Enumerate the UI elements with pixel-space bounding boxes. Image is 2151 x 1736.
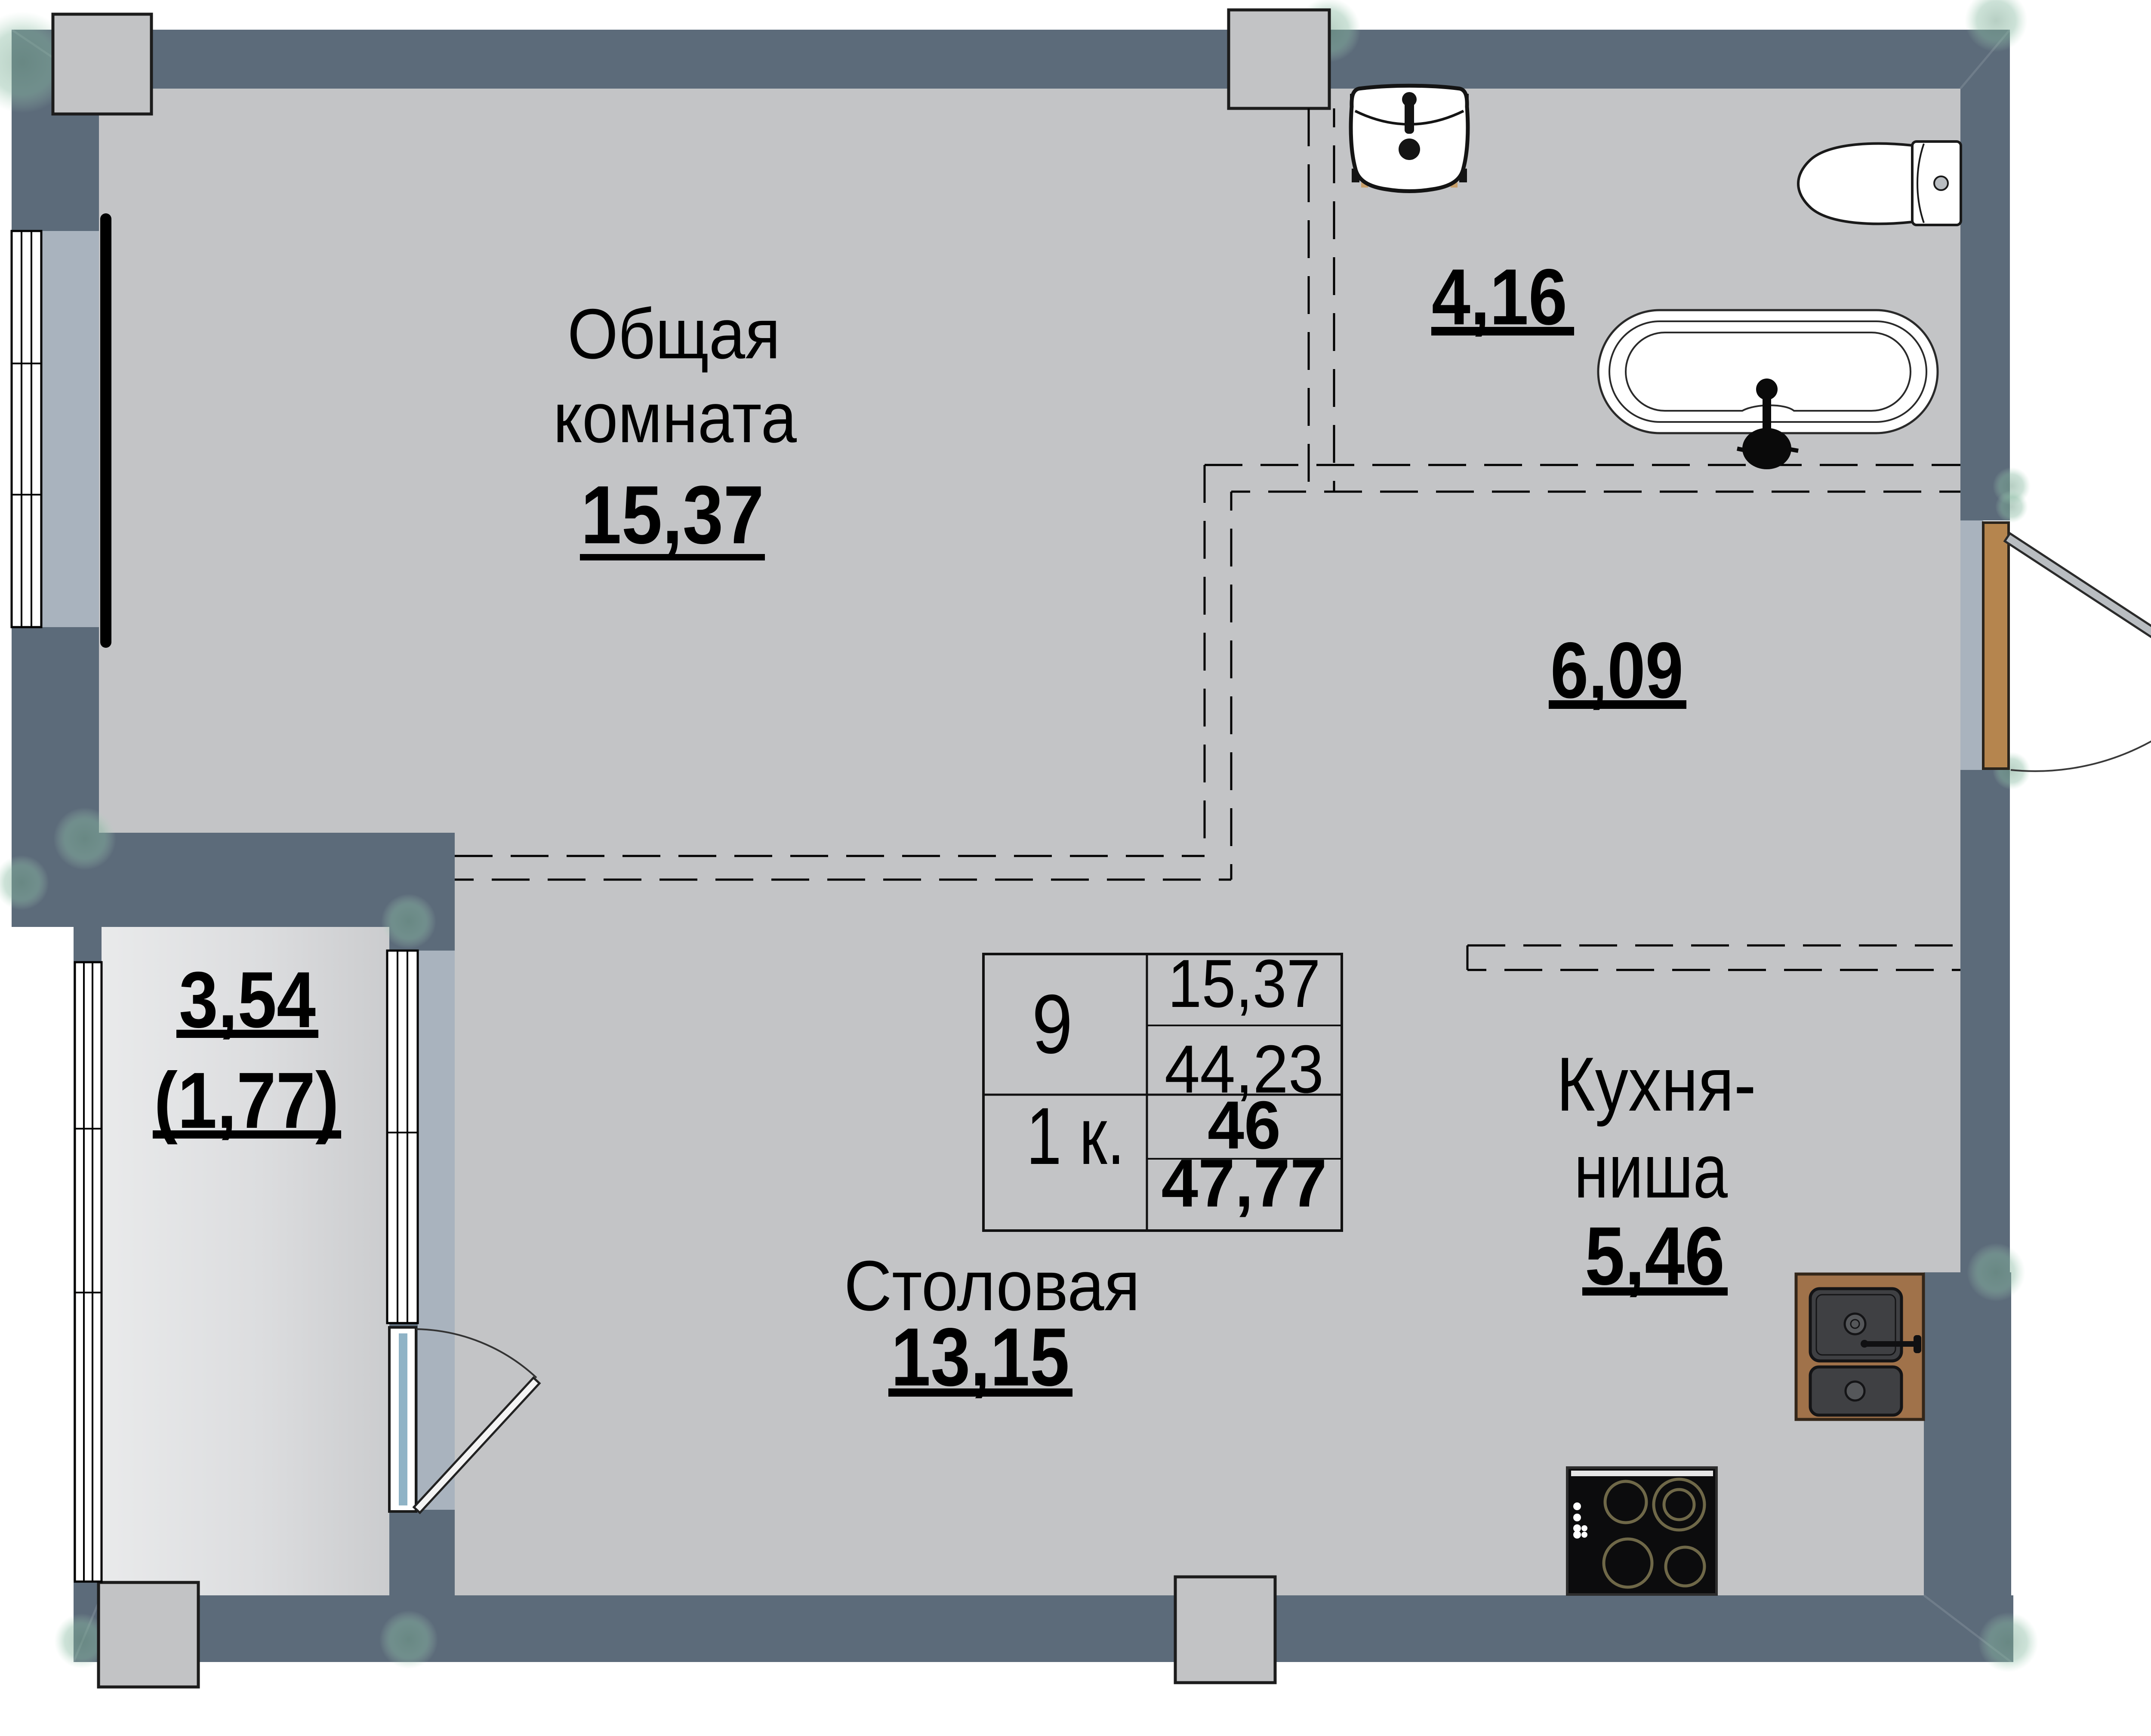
svg-text:комната: комната <box>553 378 797 457</box>
svg-text:9: 9 <box>1032 977 1073 1071</box>
svg-text:Кухня-: Кухня- <box>1556 1041 1756 1127</box>
svg-text:Общая: Общая <box>567 294 780 373</box>
svg-text:ниша: ниша <box>1574 1128 1728 1214</box>
svg-text:1 к.: 1 к. <box>1026 1091 1125 1181</box>
svg-text:15,37: 15,37 <box>581 468 764 561</box>
svg-text:15,37: 15,37 <box>1168 946 1321 1022</box>
svg-text:47,77: 47,77 <box>1162 1145 1327 1221</box>
